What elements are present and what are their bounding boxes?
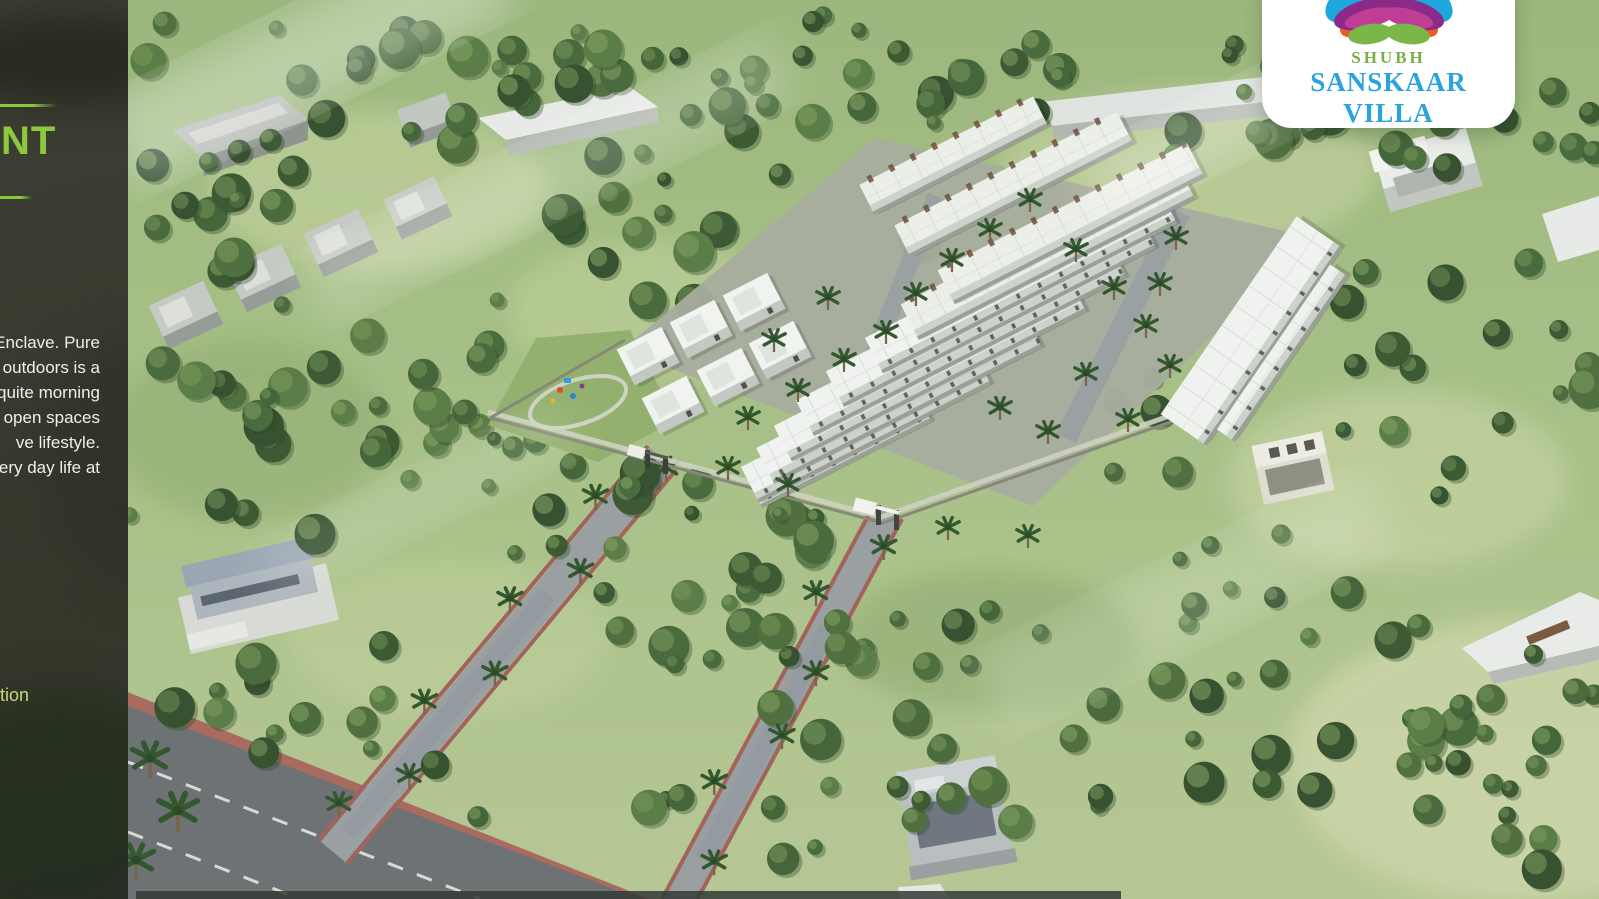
about-text-line: n open spaces [0,405,100,430]
about-text-line: ery day life at [0,455,100,480]
brand-logo-card: SHUBH SANSKAAR VILLA [1262,0,1515,128]
sidebar-link-fragment[interactable]: tion [0,685,29,706]
site-aerial-render [128,0,1599,899]
brand-name-bottom: SANSKAAR VILLA [1262,67,1515,128]
bottom-strip [136,891,1121,899]
about-paragraph: Enclave. Pure outdoors is a quite mornin… [0,330,100,480]
brand-name-top: SHUBH [1262,48,1515,68]
butterfly-logo-icon [1314,0,1464,48]
section-heading-fragment: NT [1,121,56,161]
heading-rule-bottom [0,196,32,199]
sidebar-leaf-silhouette [0,644,128,899]
page: NT Enclave. Pure outdoors is a quite mor… [0,0,1599,899]
about-text-line: quite morning [0,380,100,405]
about-text-line: outdoors is a [0,355,100,380]
sidebar: NT Enclave. Pure outdoors is a quite mor… [0,0,128,899]
sidebar-hill-silhouette [0,14,128,104]
heading-rule-top [0,104,58,107]
about-text-line: ve lifestyle. [0,430,100,455]
about-text-line: Enclave. Pure [0,330,100,355]
